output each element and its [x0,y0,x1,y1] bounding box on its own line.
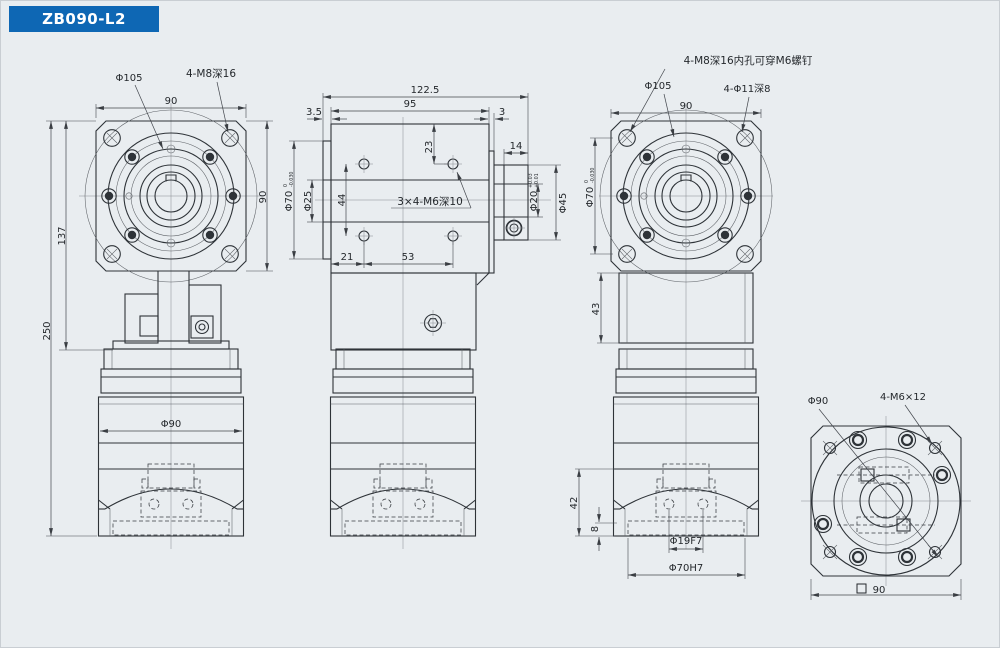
dim-face-square: 90 [873,585,886,596]
side-output-boss [504,165,528,240]
label-face-taps: 4-M6×12 [880,392,926,403]
side-socket-screw-icon [420,310,446,336]
dim-rear-plate-thk: 8 [590,526,601,532]
dim-side-total: 122.5 [411,85,440,96]
side-view: 122.5 95 3.5 3 23 14 Φ70 0 [283,85,569,549]
dim-side-hollow-tol-lo: +0.01 [534,173,540,188]
dim-side-pilot-tol-hi: 0 [283,184,289,187]
rear-view: 4-M8深16内孔可穿M6螺钉 Φ105 4-Φ11深8 90 Φ70 0 -0… [569,54,813,579]
dim-rear-pilot-bore: Φ70H7 [669,563,703,574]
dim-side-pilot-tol-lo: -0.030 [289,172,295,187]
dim-front-flange-h: 90 [258,191,269,204]
dim-front-motor-dia: Φ90 [161,419,182,430]
dim-side-cover-thk: 3 [499,107,505,118]
dim-rear-width: 90 [680,101,693,112]
dim-side-pilot: Φ70 [284,191,295,212]
label-rear-cbore: 4-Φ11深8 [724,83,771,95]
dim-rear-pilot-tol-lo: -0.030 [590,168,596,183]
front-view: 90 137 250 90 Φ90 Φ105 4-M8深16 [42,68,273,549]
dim-rear-pilot-tol-hi: 0 [584,180,590,183]
dim-side-bore: Φ25 [303,191,314,212]
dim-rear-neck-h: 43 [591,303,602,316]
label-rear-bolt-circle: Φ105 [645,81,672,92]
title-badge: ZB090-L2 [9,6,159,32]
label-rear-corner-note: 4-M8深16内孔可穿M6螺钉 [684,54,813,67]
drawing-page: ZB090-L2 [0,0,1000,648]
dim-front-137: 137 [57,226,68,245]
dim-side-hole-off: 21 [341,252,354,263]
dim-side-collar: Φ45 [558,193,569,214]
dim-front-250: 250 [42,321,53,340]
dim-side-plate-thk: 3.5 [306,107,322,118]
side-lower-body [331,273,476,350]
drawing-canvas: 90 137 250 90 Φ90 Φ105 4-M8深16 [1,1,1000,648]
dim-side-holes-h: 53 [402,252,415,263]
label-front-bolt-circle: Φ105 [116,73,143,84]
dim-rear-motor-flange-h: 42 [569,497,580,510]
dim-side-hollow: Φ20 [529,191,540,212]
dim-rear-pilot: Φ70 [585,187,596,208]
label-side-taps: 3×4-M6深10 [397,196,463,208]
clamp-screw-icon [196,321,209,334]
side-clamp-screw-icon [503,217,525,239]
drawing-title: ZB090-L2 [42,10,126,28]
label-front-corner-tap: 4-M8深16 [186,68,236,80]
dim-side-hole-top: 23 [424,141,435,154]
dim-side-hollow-tol-hi: +0.03 [528,173,534,188]
dim-rear-shaft-hole: Φ19F7 [670,536,703,547]
dim-side-boss-len: 14 [510,141,523,152]
motor-face-view: Φ90 4-M6×12 90 [801,392,971,600]
square-symbol [857,584,866,593]
dim-side-holes-v: 44 [337,194,348,207]
dim-side-housing: 95 [404,99,417,110]
face-m6-holes [823,441,942,559]
dim-front-width: 90 [165,96,178,107]
label-face-pilot: Φ90 [808,396,829,407]
side-cover-plate [489,151,494,273]
